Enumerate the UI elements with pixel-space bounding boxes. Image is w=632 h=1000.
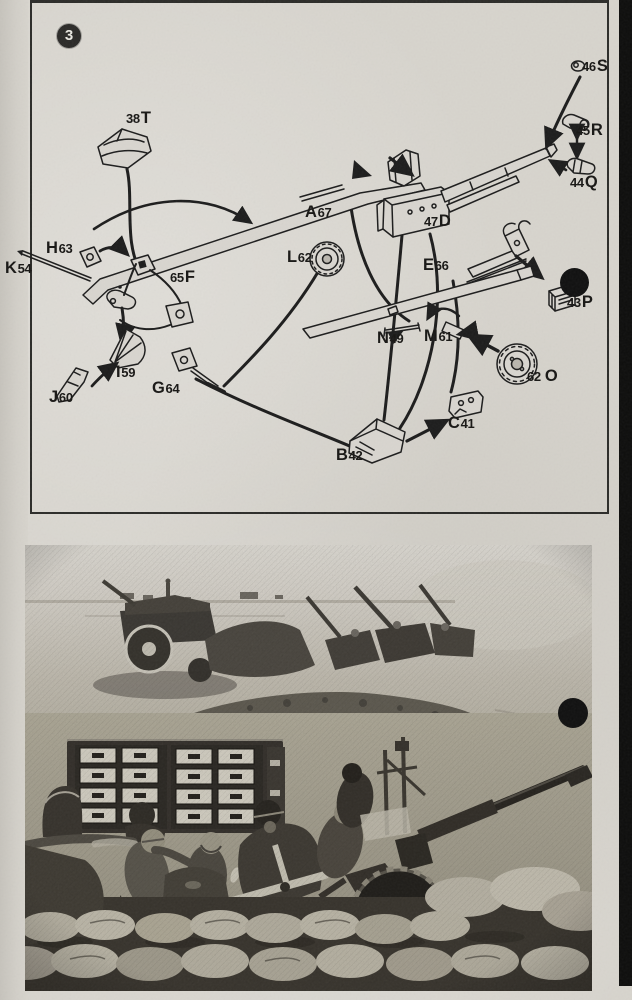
part-label-62O: 62O — [527, 368, 557, 385]
part-label-44Q: 44Q — [570, 174, 597, 191]
field-gun — [320, 737, 592, 965]
part-label-K54: K54 — [5, 260, 32, 277]
part-label-H63: H63 — [46, 240, 73, 257]
black-dot-mark-photo — [558, 698, 588, 728]
part-label-B42: B42 — [336, 447, 363, 464]
part-label-65F: 65F — [170, 269, 195, 286]
photo-vignette — [25, 545, 592, 991]
part-label-45R: 45R — [576, 122, 603, 139]
photo-grain — [25, 545, 592, 991]
part-label-J60: J60 — [49, 389, 73, 406]
part-label-G64: G64 — [152, 380, 179, 397]
desert-horizon — [25, 560, 592, 650]
part-label-47D: 47D — [424, 213, 451, 230]
part-label-M61: M61 — [424, 328, 452, 345]
part-label-38T: 38T — [126, 110, 151, 127]
part-label-46S: 46S — [582, 58, 608, 75]
gun-crew-figures — [27, 763, 378, 937]
instruction-page: { "colors": { "paper": "#d7d4cd", "ink":… — [0, 0, 632, 1000]
assembly-diagram-frame — [30, 0, 609, 514]
part-label-E66: E66 — [423, 257, 449, 274]
foreground-ground — [25, 713, 592, 991]
sandbag-wall — [25, 845, 592, 991]
step-number-badge: 3 — [57, 24, 81, 48]
part-label-N49: N49 — [377, 330, 404, 347]
step-number: 3 — [65, 27, 73, 44]
battle-photograph — [25, 545, 592, 991]
desert-sky — [25, 545, 592, 991]
part-label-A67: A67 — [305, 204, 332, 221]
ammo-limber-boxes — [42, 739, 285, 837]
part-label-L62: L62 — [287, 249, 312, 266]
rubble-mound — [25, 692, 592, 767]
page-binding-shade — [0, 0, 28, 1000]
page-edge-black-bar — [619, 0, 632, 986]
part-label-I59: I59 — [116, 364, 135, 381]
vehicle-silhouettes — [93, 579, 475, 700]
halftone-screen — [25, 545, 592, 991]
black-dot-mark-diagram — [560, 268, 589, 297]
part-label-C41: C41 — [448, 415, 475, 432]
